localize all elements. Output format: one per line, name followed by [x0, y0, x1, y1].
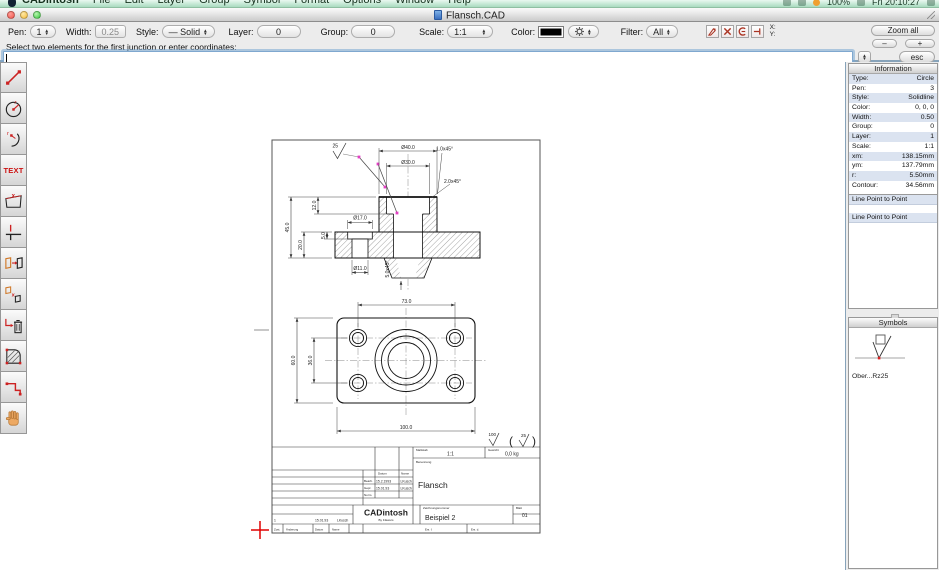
tb-weight-value: 0,0 kg	[505, 452, 519, 458]
info-row: Pen:3	[849, 84, 937, 94]
paren-close: )	[532, 434, 536, 448]
info-row: Type:Circle	[849, 74, 937, 84]
tb-sheet-label: Blatt	[516, 506, 522, 510]
trash-icon	[3, 315, 24, 336]
tb-weight-label: Gewicht	[488, 448, 499, 452]
menu-edit[interactable]: Edit	[125, 0, 144, 6]
esc-button[interactable]: esc	[899, 51, 935, 63]
menu-help[interactable]: Help	[448, 0, 471, 6]
dim-chamfer1: 1.0x45°	[436, 147, 453, 153]
text-caret	[6, 54, 7, 63]
status-dot-icon	[813, 0, 820, 6]
group-field[interactable]: 0	[351, 25, 395, 38]
stepper-icon: ▲▼	[587, 29, 591, 35]
technical-drawing: 25 Ø40.0 Ø30.0 1.0x	[27, 62, 845, 570]
junction-tool-button[interactable]	[0, 217, 27, 248]
filter-select[interactable]: All▲▼	[646, 25, 677, 38]
stepper-icon: ▲▼	[45, 29, 49, 35]
polyline-icon	[3, 377, 24, 398]
window-title: Flansch.CAD	[0, 10, 939, 22]
spotlight-icon[interactable]	[927, 0, 935, 6]
snap-pen-button[interactable]	[706, 25, 719, 38]
tb-date-label: Datum	[378, 472, 387, 476]
circle-icon: r	[3, 98, 24, 119]
menu-window[interactable]: Window	[395, 0, 434, 6]
pen-label: Pen:	[8, 27, 27, 37]
width-field[interactable]: 0.25	[95, 25, 127, 38]
roughness-25: 25	[521, 433, 527, 438]
tb-sheet-value: 01	[522, 513, 528, 519]
battery-icon	[857, 0, 865, 6]
tb-norm-label: Norm.	[364, 493, 372, 497]
info-row: Layer:1	[849, 132, 937, 142]
surface-symbol-thumbnail[interactable]	[853, 332, 913, 368]
duplicate-icon: x	[3, 284, 24, 305]
zoom-in-button[interactable]: +	[905, 39, 935, 49]
menu-options[interactable]: Options	[343, 0, 381, 6]
text-tool-button[interactable]: TEXT	[0, 155, 27, 186]
tb-datum2-label: Datum	[315, 528, 324, 532]
arc-icon: r	[3, 129, 24, 150]
copy-icon	[3, 253, 24, 274]
color-swatch[interactable]	[538, 26, 564, 38]
tb-chg-date: 15.01.93	[315, 519, 328, 523]
tb-dwg-no: Beispiel 2	[425, 515, 455, 522]
panel-tab-notch[interactable]	[891, 314, 899, 318]
document-icon	[434, 10, 442, 20]
group-label: Group:	[321, 27, 349, 37]
svg-text:r: r	[7, 131, 10, 137]
hand-icon	[3, 408, 24, 429]
junction-icon	[3, 222, 24, 243]
color-label: Color:	[511, 27, 535, 37]
layer-label: Layer:	[229, 27, 254, 37]
tb-gepr-label: Gepr.	[364, 486, 372, 490]
filter-x-button[interactable]	[721, 25, 734, 38]
text-tool-label: TEXT	[4, 166, 24, 175]
dim-d30: Ø30.0	[401, 160, 415, 166]
info-row: Scale:1:1	[849, 142, 937, 152]
delete-tool-button[interactable]	[0, 310, 27, 341]
tb-benennung-label: Benennung	[416, 460, 432, 464]
tb-part-name: Flansch	[418, 480, 448, 490]
pen-select[interactable]: 1▲▼	[30, 25, 56, 38]
tb-bearb-label: Bearb.	[364, 479, 373, 483]
info-row: Group:0	[849, 122, 937, 132]
x-mark-icon	[723, 27, 732, 36]
information-panel-title[interactable]: Information	[849, 64, 937, 74]
tb-name-label: Name	[401, 472, 409, 476]
tb-app-name: CADintosh	[364, 508, 408, 518]
dimension-tool-button[interactable]: x	[0, 186, 27, 217]
pan-tool-button[interactable]	[0, 403, 27, 434]
tb-scale-label: Maßstab	[416, 448, 428, 452]
tb-bearb-date: 15.2.1993	[376, 480, 391, 484]
info-row: ym:137.79mm	[849, 161, 937, 171]
command-stepper[interactable]: ▲▼	[858, 51, 871, 63]
style-label: Style:	[136, 27, 159, 37]
tb-gepr-name: LKusch	[401, 487, 412, 491]
dim-h36: 36.0	[308, 355, 314, 365]
stepper-icon: ▲▼	[482, 29, 486, 35]
menu-group[interactable]: Group	[199, 0, 230, 6]
information-list: Type:Circle Pen:3 Style:Solidline Color:…	[849, 74, 937, 190]
menubar-clock[interactable]: Fri 20:10:27	[872, 0, 920, 7]
info-row: Contour:34.56mm	[849, 181, 937, 191]
gear-icon	[575, 27, 584, 36]
filter-label: Filter:	[621, 27, 644, 37]
layer-field[interactable]: 0	[257, 25, 301, 38]
battery-percent: 100%	[827, 0, 850, 7]
color-options-select[interactable]: ▲▼	[568, 25, 598, 38]
line-tool-button[interactable]	[0, 62, 27, 93]
duplicate-tool-button[interactable]: x	[0, 279, 27, 310]
surface-roughness-value: 25	[332, 144, 338, 150]
tb-aenderung-label: Änderung	[286, 528, 299, 532]
tb-chg-name: LKusch	[337, 519, 348, 523]
dim-d11: Ø11.0	[353, 266, 366, 272]
info-row: Width:0.50	[849, 113, 937, 123]
filter-curve-button[interactable]	[736, 25, 749, 38]
dim-v45: 45.0	[285, 222, 291, 232]
hatch-tool-button[interactable]	[0, 341, 27, 372]
tb-bearb-name: LKusch	[401, 480, 412, 484]
crosshair-cursor	[251, 521, 269, 539]
tool-sidebar: r r TEXT x	[0, 62, 27, 434]
endpoint-icon	[753, 27, 762, 36]
info-row: Color:0, 0, 0	[849, 103, 937, 113]
tb-ersf-label: Ers. f.	[425, 528, 433, 532]
scale-select[interactable]: 1:1▲▼	[447, 25, 493, 38]
volume-icon[interactable]	[798, 0, 806, 6]
scale-label: Scale:	[419, 27, 444, 37]
control-bar: Pen: 1▲▼ Width: 0.25 Style: — Solid▲▼ La…	[0, 22, 939, 62]
style-select[interactable]: — Solid▲▼	[162, 25, 215, 38]
dimension-icon: x	[3, 191, 24, 212]
polyline-tool-button[interactable]	[0, 372, 27, 403]
stepper-icon: ▲▼	[666, 29, 670, 35]
history-item[interactable]: Line Point to Point	[849, 213, 937, 223]
history-item[interactable]: Line Point to Point	[849, 195, 937, 205]
roughness-100: 100	[488, 432, 496, 437]
tb-scale-value: 1:1	[447, 452, 454, 458]
symbols-panel-title[interactable]: Symbols	[849, 318, 937, 328]
svg-text:x: x	[12, 192, 16, 199]
stepper-icon: ▲▼	[862, 54, 866, 60]
filter-endpoint-button[interactable]	[751, 25, 764, 38]
dim-v12: 12.0	[312, 200, 318, 210]
tb-ersd-label: Ers. d.	[471, 528, 479, 532]
menu-symbol[interactable]: Symbol	[244, 0, 281, 6]
menu-format[interactable]: Format	[294, 0, 329, 6]
right-panel: Information Type:Circle Pen:3 Style:Soli…	[845, 62, 939, 570]
menu-app[interactable]: CADintosh	[22, 0, 79, 6]
curve-c-icon	[738, 27, 747, 36]
dim-v5: 5.0	[321, 232, 327, 239]
tb-chg-no: 1	[274, 519, 276, 523]
line-icon	[3, 67, 24, 88]
window-titlebar: Flansch.CAD	[0, 8, 939, 22]
information-panel: Information Type:Circle Pen:3 Style:Soli…	[848, 63, 938, 309]
apple-menu-icon[interactable]	[8, 0, 16, 7]
zoom-all-button[interactable]: Zoom all	[871, 25, 935, 36]
paren-open: (	[509, 434, 513, 448]
tb-app-sub: By F.Ewers	[378, 518, 394, 522]
pen-nib-icon	[708, 27, 717, 36]
dim-w73: 73.0	[402, 299, 412, 305]
info-row: Style:Solidline	[849, 93, 937, 103]
dim-w100: 100.0	[400, 425, 413, 431]
symbols-panel: Symbols Ober...Rz25	[848, 317, 938, 569]
dim-chamfer5: 5.0x45°	[385, 260, 391, 277]
dim-v20: 20.0	[298, 240, 304, 250]
hatch-icon	[3, 346, 24, 367]
dim-chamfer2: 2.0x45°	[444, 179, 461, 185]
info-row: r:5.50mm	[849, 171, 937, 181]
copy-tool-button[interactable]	[0, 248, 27, 279]
window-resize-icon[interactable]	[927, 11, 935, 19]
dim-d17: Ø17.0	[353, 216, 367, 222]
dim-h60: 60.0	[291, 355, 297, 365]
info-row: xm:138.15mm	[849, 152, 937, 162]
menubar-extra-icon[interactable]	[783, 0, 791, 6]
tb-gepr-date: 15.01.93	[376, 487, 389, 491]
y-coordinate-label: Y:	[770, 32, 776, 39]
tb-dwgno-label: Zeichnungsnummer	[423, 506, 450, 510]
dim-d40: Ø40.0	[401, 145, 415, 151]
macos-menubar: CADintosh File Edit Layer Group Symbol F…	[0, 0, 939, 8]
drawing-canvas[interactable]: 25 Ø40.0 Ø30.0 1.0x	[27, 62, 845, 570]
menu-file[interactable]: File	[93, 0, 111, 6]
arc-tool-button[interactable]: r	[0, 124, 27, 155]
symbol-item-label[interactable]: Ober...Rz25	[852, 373, 888, 380]
menu-layer[interactable]: Layer	[158, 0, 186, 6]
stepper-icon: ▲▼	[203, 29, 207, 35]
tb-zust-label: Zust.	[274, 528, 280, 532]
width-label: Width:	[66, 27, 92, 37]
circle-tool-button[interactable]: r	[0, 93, 27, 124]
tb-name2-label: Name	[332, 528, 340, 532]
zoom-out-button[interactable]: –	[872, 39, 897, 49]
